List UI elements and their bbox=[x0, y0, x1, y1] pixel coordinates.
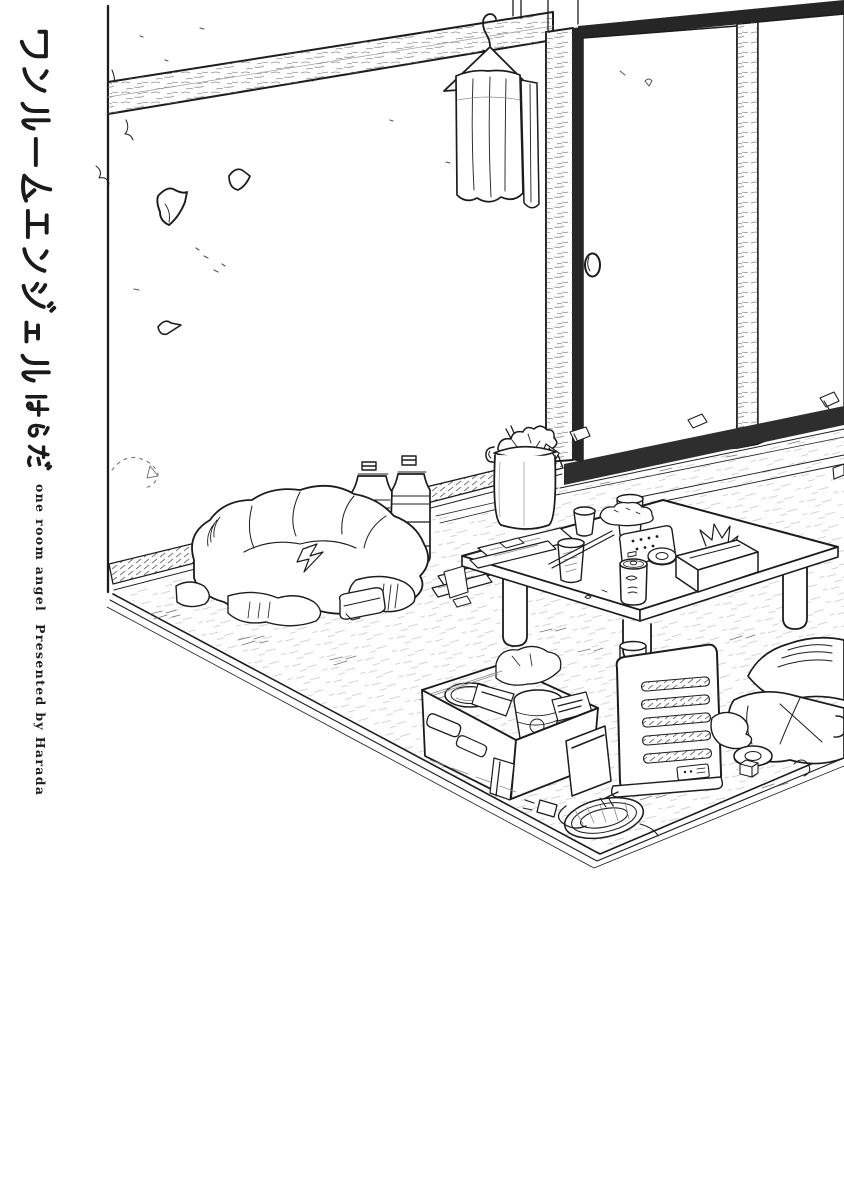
door-right-panel bbox=[758, 14, 844, 444]
door-catch bbox=[585, 254, 600, 277]
door-left-panel bbox=[583, 26, 737, 462]
japanese-title-glyphs bbox=[0, 0, 70, 500]
tape-roll bbox=[648, 548, 676, 565]
wood-pillar bbox=[546, 27, 583, 463]
manga-title-page: ワンルームエンジェル はらだ bbox=[0, 0, 844, 1200]
pillar-stub-above-beam bbox=[513, 0, 521, 18]
room-illustration bbox=[0, 0, 844, 1200]
small-cube bbox=[740, 760, 758, 777]
trash-pail-with-chopsticks bbox=[486, 426, 559, 529]
glass-with-drink bbox=[558, 539, 584, 583]
drink-can bbox=[620, 559, 647, 605]
title-vertical-japanese: ワンルームエンジェル はらだ bbox=[0, 0, 70, 500]
glass bbox=[574, 507, 595, 536]
tatami-rug bbox=[107, 430, 844, 868]
subtitle-english: one room angel bbox=[33, 484, 48, 612]
credit-presented-by: Presented by Harada bbox=[33, 624, 48, 796]
hanging-towels bbox=[456, 71, 539, 208]
wall-peeling-patch bbox=[157, 169, 250, 334]
